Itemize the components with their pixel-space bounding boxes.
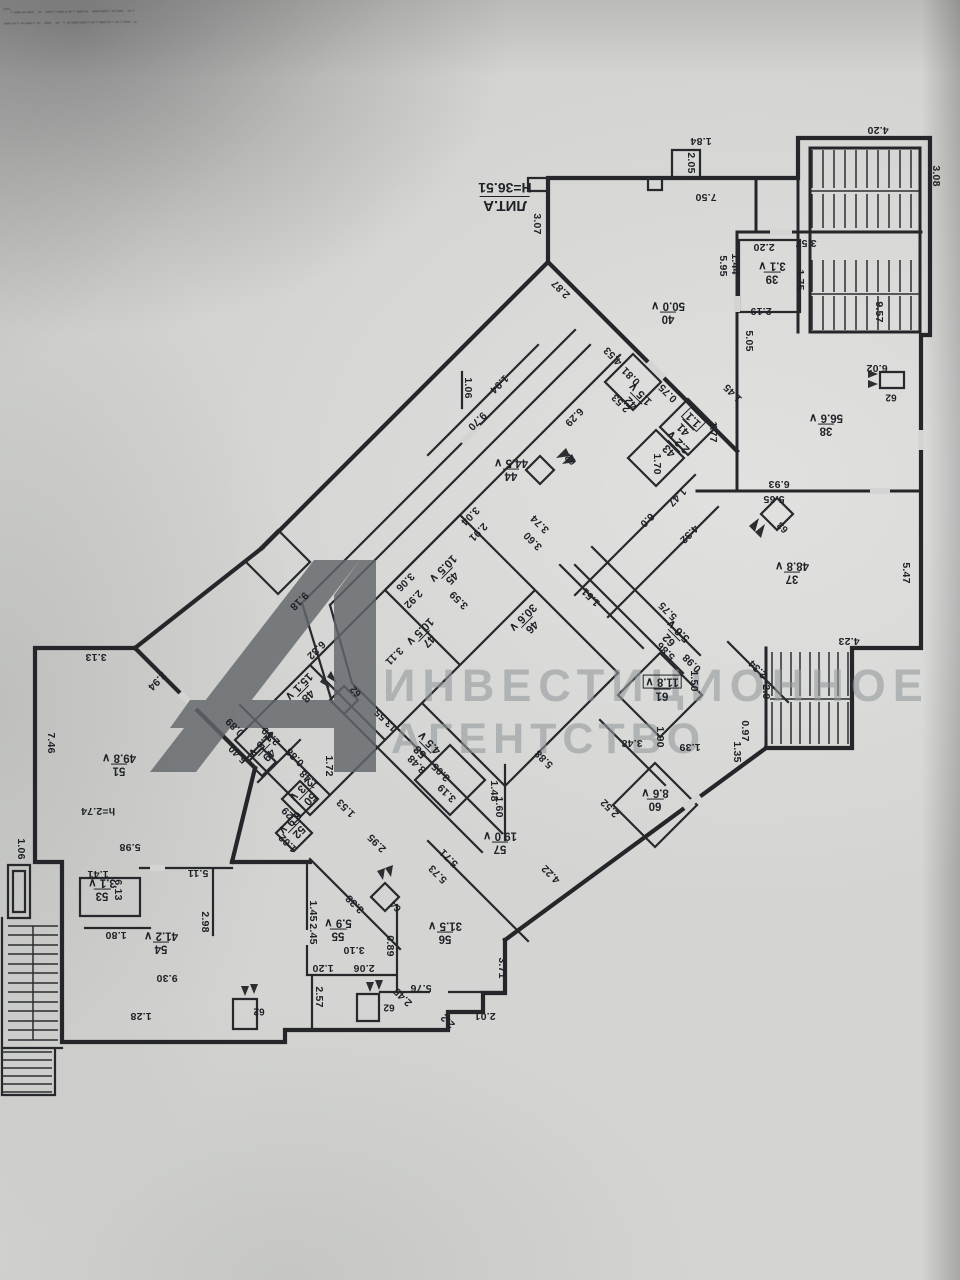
room-number: 40 — [660, 312, 677, 325]
dimension-label: 1.45 — [307, 900, 319, 921]
dimension-label: 2.20 — [753, 241, 774, 253]
room-area: 56.6 ∨ — [809, 411, 843, 423]
room-number: 51 — [111, 764, 128, 777]
liter-label: ЛИТ.А — [480, 196, 530, 214]
dimension-label: 3.07 — [531, 213, 543, 234]
dimension-label: 3.57 — [795, 237, 816, 249]
dimension-label: 2.45 — [307, 923, 319, 944]
height-label: Н=36.51 — [478, 180, 531, 196]
room-area: 19.0 ∨ — [483, 829, 517, 841]
room-area: 31.5 ∨ — [428, 919, 462, 931]
room-number: 60 — [647, 799, 664, 812]
dimension-label: 6.02 — [866, 362, 887, 374]
room-area: 48.8 ∨ — [775, 559, 809, 571]
dimension-label: 5.65 — [763, 493, 784, 505]
room-number: 61 — [654, 689, 671, 702]
dimension-label: 1.90 — [654, 726, 666, 747]
dimension-label: 1.39 — [679, 741, 700, 753]
dimension-label: 0.97 — [739, 720, 751, 741]
dimension-label: 2.98 — [199, 911, 211, 932]
dimension-label: 1.75 — [794, 269, 806, 290]
floor-plan-photo: ИНВЕСТИЦИОННОЕ АГЕНТСТВО ЛИТ.А Н=36.51 ‾… — [0, 0, 960, 1280]
room-label: 6111.8 ∨ — [642, 674, 681, 701]
dimension-label: 5.98 — [119, 841, 140, 853]
dimension-label: 5.11 — [188, 867, 209, 879]
dimension-label: 0.89 — [384, 935, 396, 956]
dimension-label: 7.50 — [695, 191, 716, 203]
mezzanine-height-note: h=2.74 — [81, 805, 115, 817]
dimension-label: 2.19 — [750, 305, 771, 317]
dimension-label: 4.20 — [867, 124, 888, 136]
dimension-label: 1.84 — [690, 135, 711, 147]
room-label: 555.9 ∨ — [324, 916, 352, 941]
dimension-label: 1.70 — [651, 453, 663, 474]
room-area: 5.9 ∨ — [324, 916, 352, 928]
room-label: 393.1 ∨ — [758, 259, 786, 284]
dimension-label: 7.46 — [45, 732, 57, 753]
room-number: 37 — [784, 572, 801, 585]
room-number: 54 — [153, 942, 170, 955]
dimension-label: 1.50 — [688, 670, 700, 691]
shaft-label: 62 — [383, 1002, 394, 1013]
room-number: 57 — [492, 842, 509, 855]
room-label: 5719.0 ∨ — [483, 829, 517, 854]
room-number: 44 — [503, 469, 520, 482]
dimension-label: 1.35 — [731, 741, 743, 762]
dimension-label: 9.57 — [873, 301, 885, 322]
dimension-label: 1.06 — [15, 838, 27, 859]
room-area: 3.1 ∨ — [758, 259, 786, 271]
room-number: 39 — [764, 272, 781, 285]
room-label: 3748.8 ∨ — [775, 559, 809, 584]
dimension-label: 1.44 — [729, 253, 741, 274]
plan-title: ЛИТ.А Н=36.51 — [478, 178, 531, 214]
dimension-label: 1.28 — [130, 1010, 151, 1022]
dimension-label: 1.77 — [707, 421, 719, 442]
room-label: 5631.5 ∨ — [428, 919, 462, 944]
room-area: 8.6 ∨ — [641, 786, 669, 798]
dimension-label: 9.30 — [156, 972, 177, 984]
room-label: 5441.2 ∨ — [144, 929, 178, 954]
room-area: 50.0 ∨ — [651, 299, 685, 311]
dimension-label: 3.48 — [621, 737, 642, 749]
room-number: 38 — [818, 424, 835, 437]
dimension-label: 3.13 — [85, 651, 106, 663]
dimension-label: 2.05 — [685, 152, 697, 173]
dimension-label: 3.10 — [343, 944, 364, 956]
dimension-label: 3.71 — [496, 957, 508, 978]
dimension-label: 2.06 — [353, 962, 374, 974]
dimension-label: 1.06 — [462, 377, 474, 398]
dimension-label: 6.93 — [768, 478, 789, 490]
dimension-label: 2.9 — [760, 684, 772, 699]
shaft-label: 62 — [253, 1006, 264, 1017]
corner-stamp: ‾‾·—–— – —·—‑–·—– ——·–— –· —–·–—·– — – ·… — [4, 4, 254, 29]
dimension-label: 2.57 — [313, 986, 325, 1007]
dimension-label: 2.01 — [474, 1010, 495, 1022]
dimension-label: 1.72 — [323, 755, 335, 776]
room-number: 55 — [330, 929, 347, 942]
room-label: 4050.0 ∨ — [651, 299, 685, 324]
room-number: 56 — [437, 932, 454, 945]
room-number: 53 — [94, 889, 111, 902]
dimension-label: 5.05 — [743, 330, 755, 351]
dimension-label: 1.60 — [493, 796, 505, 817]
room-label: 4444.5 ∨ — [494, 456, 528, 481]
dimension-label: 1.20 — [312, 962, 333, 974]
room-area: 44.5 ∨ — [494, 456, 528, 468]
room-label: 3856.6 ∨ — [809, 411, 843, 436]
shaft-label: 62 — [885, 392, 896, 403]
dimension-label: 5.95 — [717, 255, 729, 276]
dimension-label: 5.47 — [900, 562, 912, 583]
room-label: 5149.8 ∨ — [102, 751, 136, 776]
dimension-label: 1.80 — [105, 929, 126, 941]
room-label: 608.6 ∨ — [641, 786, 669, 811]
room-area: 41.2 ∨ — [144, 929, 178, 941]
room-area: 49.8 ∨ — [102, 751, 136, 763]
dimension-label: 3.08 — [930, 165, 942, 186]
dimension-label: 5.76 — [410, 982, 431, 994]
dimension-label: 4.23 — [838, 635, 859, 647]
room-area: 3.1 ∨ — [88, 876, 116, 888]
room-label: 533.1 ∨ — [88, 876, 116, 901]
room-area: 11.8 ∨ — [642, 674, 681, 688]
